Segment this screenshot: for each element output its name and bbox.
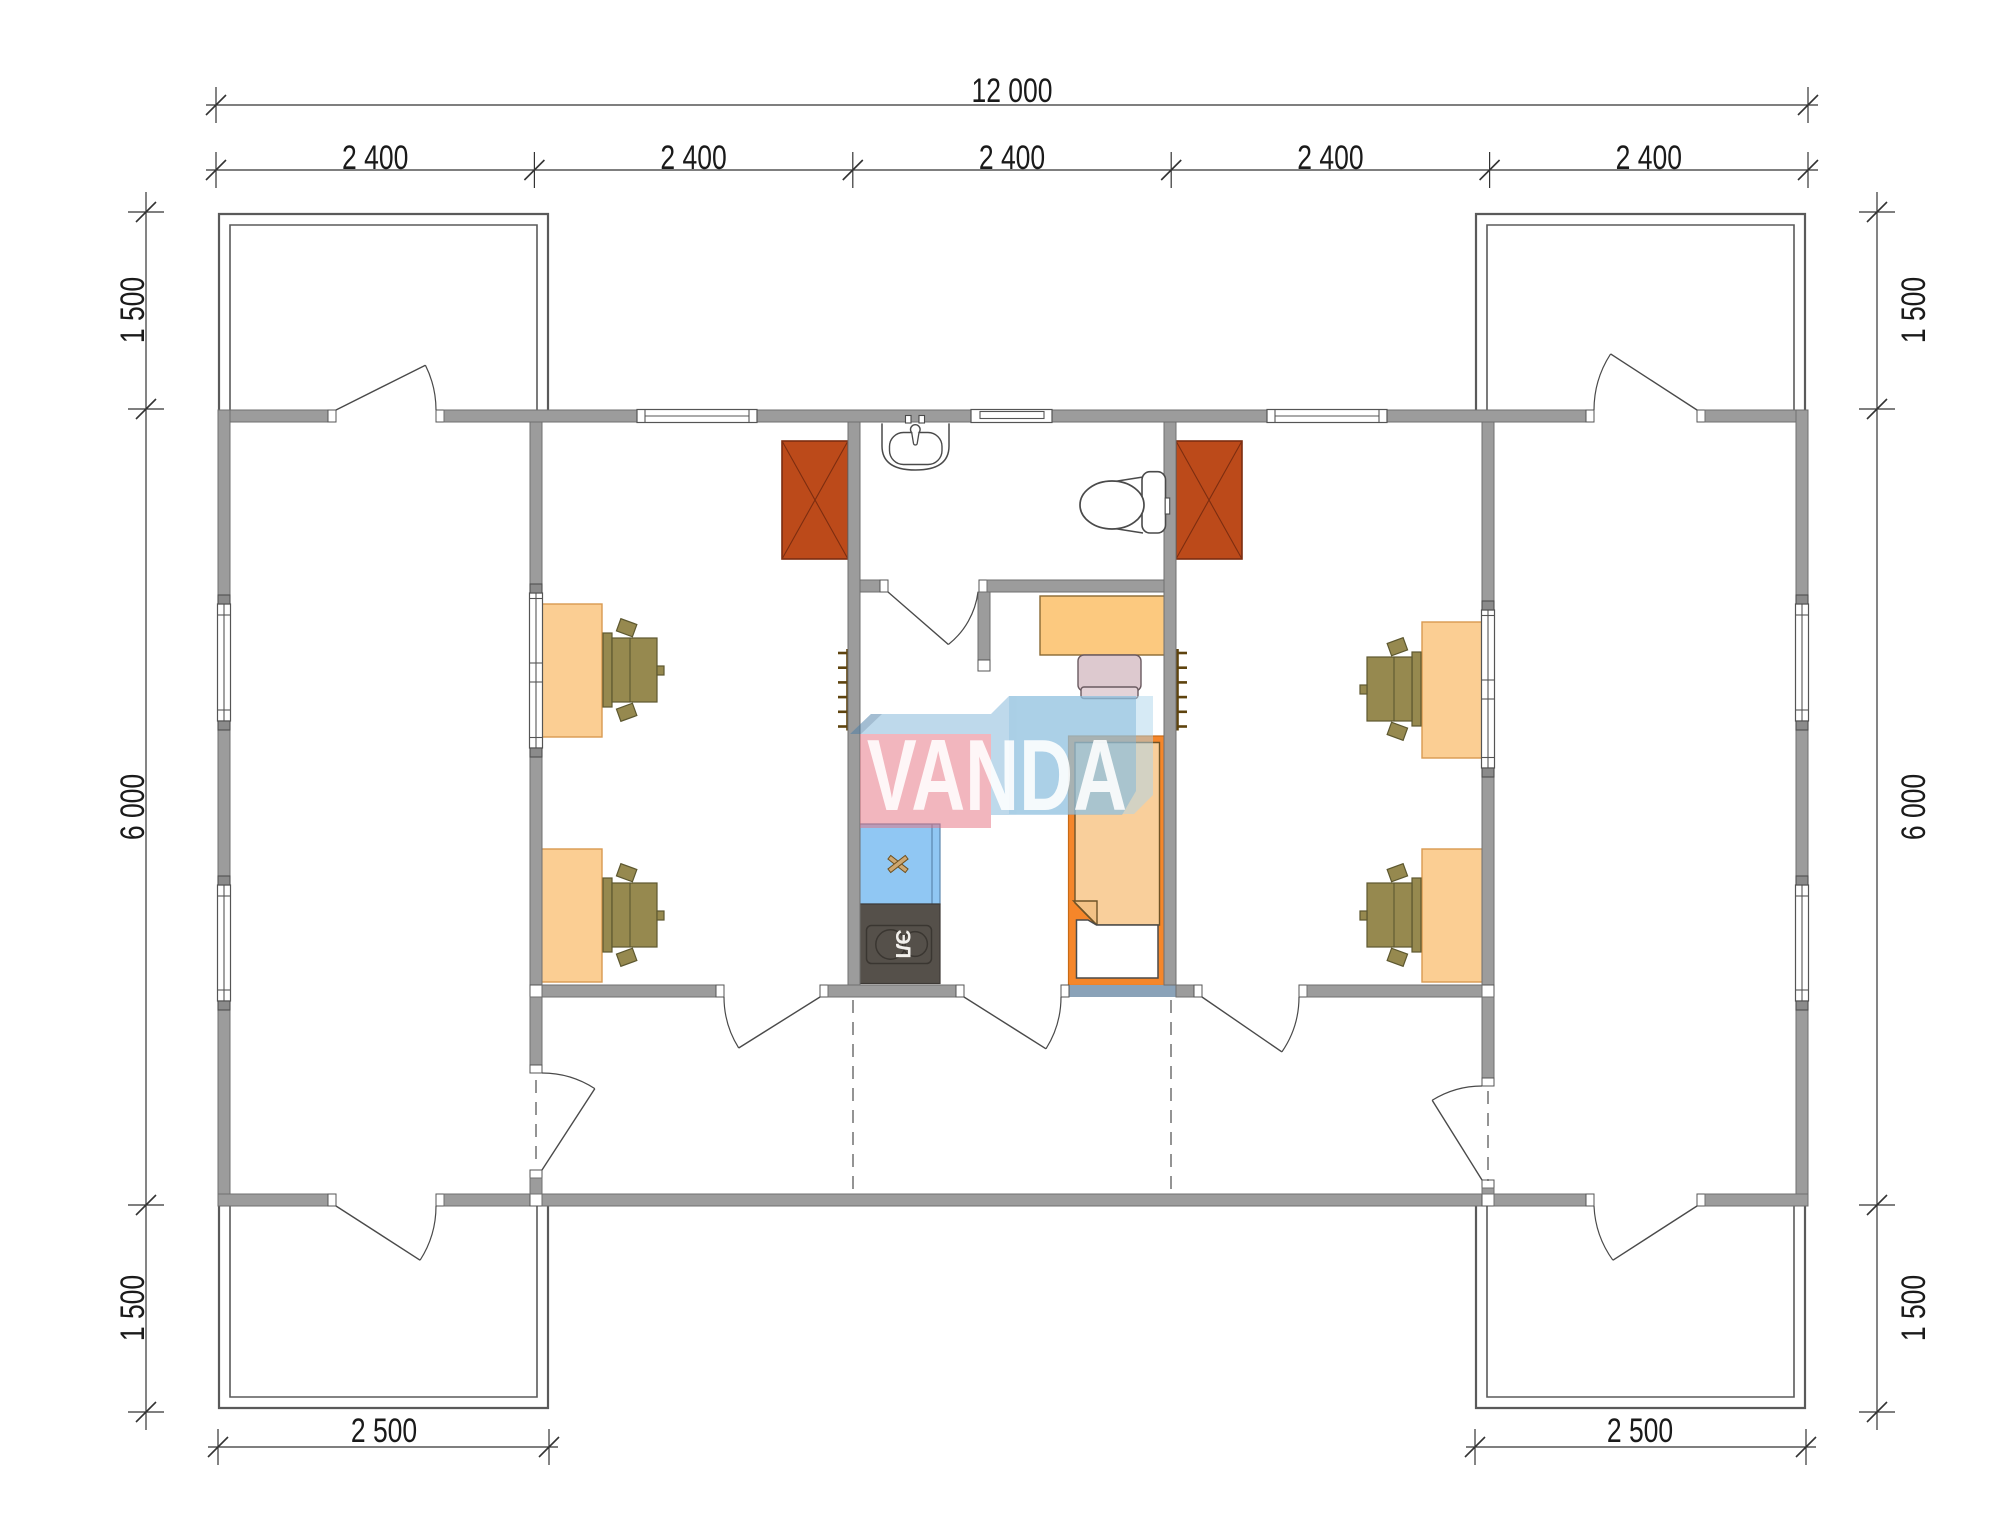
svg-text:ЭЛ: ЭЛ xyxy=(891,930,914,959)
svg-text:2 400: 2 400 xyxy=(1297,139,1363,177)
svg-text:2 400: 2 400 xyxy=(1616,139,1682,177)
svg-text:12 000: 12 000 xyxy=(971,72,1052,110)
svg-text:VANDA: VANDA xyxy=(867,719,1127,832)
svg-text:2 400: 2 400 xyxy=(660,139,726,177)
svg-text:2 400: 2 400 xyxy=(979,139,1045,177)
svg-text:2 400: 2 400 xyxy=(342,139,408,177)
svg-text:1 500: 1 500 xyxy=(114,1275,152,1341)
svg-text:2 500: 2 500 xyxy=(351,1412,417,1450)
svg-text:6 000: 6 000 xyxy=(1895,774,1933,840)
svg-text:2 500: 2 500 xyxy=(1607,1412,1673,1450)
svg-text:1 500: 1 500 xyxy=(1895,1275,1933,1341)
svg-text:1 500: 1 500 xyxy=(1895,277,1933,343)
svg-text:1 500: 1 500 xyxy=(114,277,152,343)
svg-text:6 000: 6 000 xyxy=(114,774,152,840)
